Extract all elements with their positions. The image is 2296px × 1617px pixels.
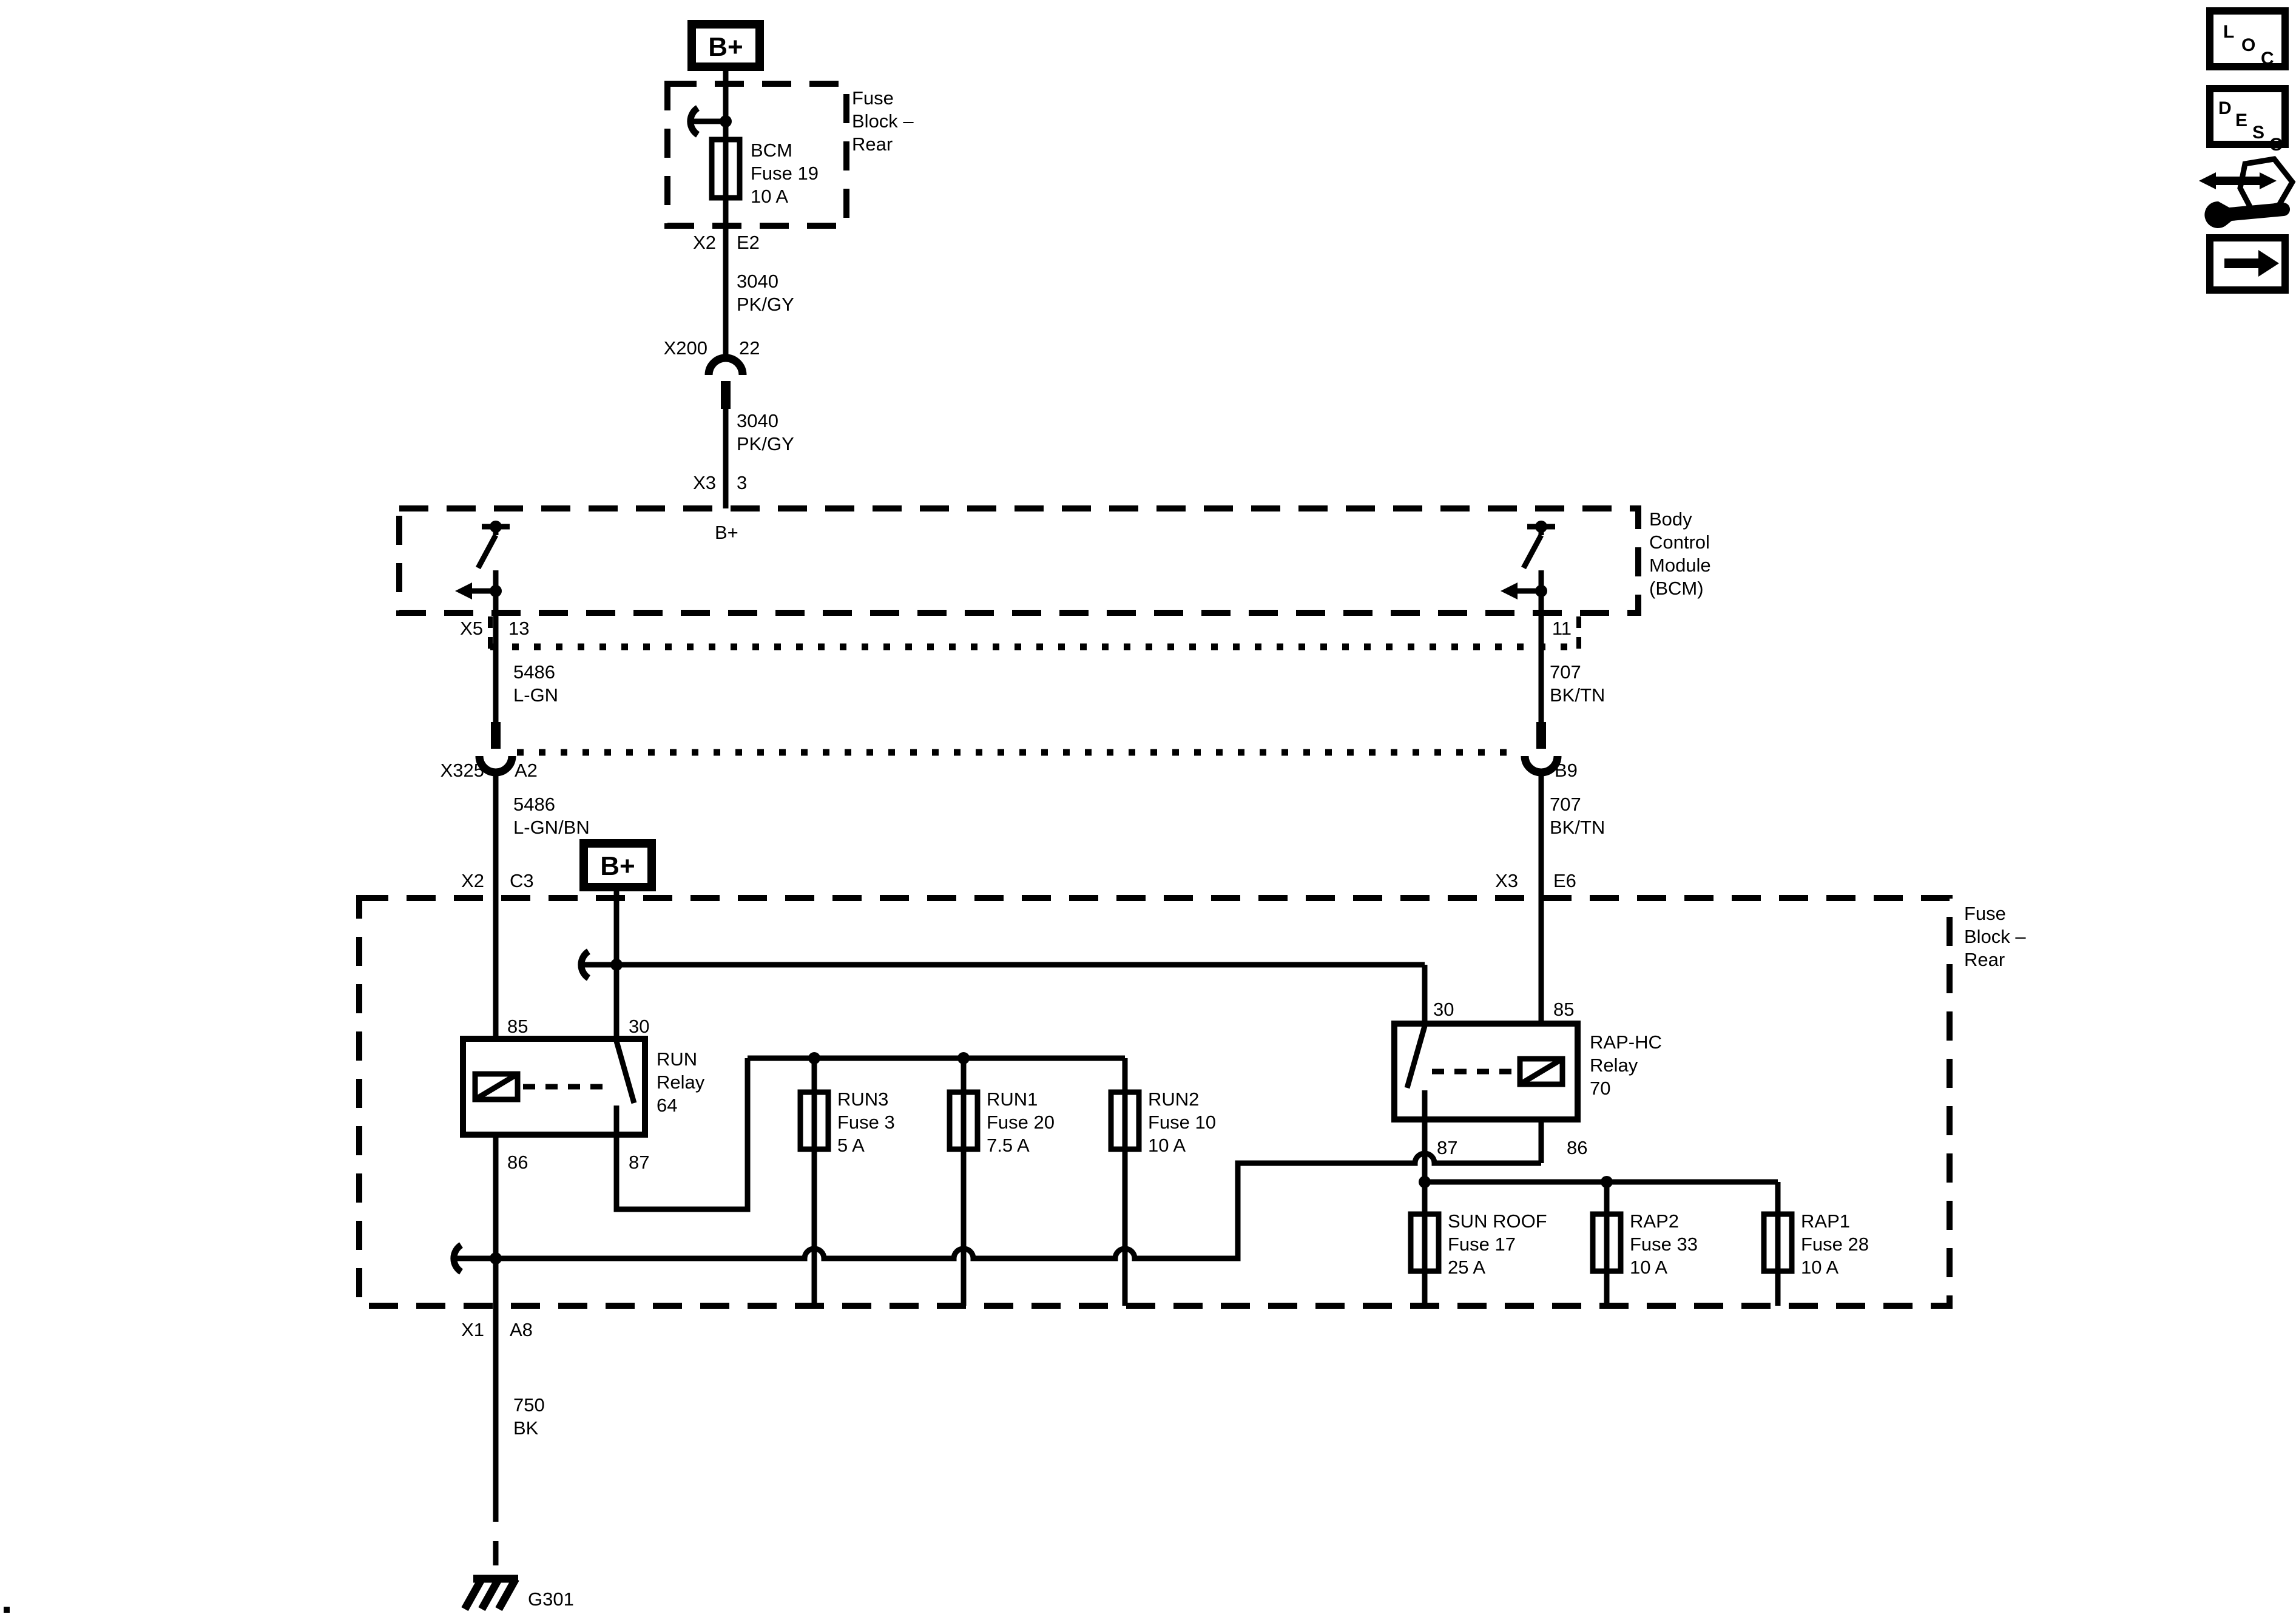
right-arrow-icon [2224,258,2258,268]
connector-label: X3 [1495,870,1518,891]
bcm-label-line: Control [1649,532,1710,553]
wire-color-code: PK/GY [737,294,794,315]
battery-positive-label: B+ [708,32,743,62]
top-feed: B+ X2 E2 3040 PK/GY X200 22 3040 PK/GY X… [664,24,794,508]
fuse-id: Fuse 20 [987,1112,1055,1133]
fuse-rating: 5 A [837,1135,865,1156]
ground-label: G301 [528,1588,574,1610]
desc-button[interactable]: D E S C [2210,89,2285,155]
fuse-rating: 7.5 A [987,1135,1030,1156]
rap-hc-relay: 30 85 87 86 RAP-HC Relay 70 [1394,999,1662,1158]
relay-pin-label: 85 [1553,999,1574,1020]
wire-circuit-number: 707 [1550,661,1581,683]
block-label-line: Block – [852,110,914,132]
pin-label: A2 [515,760,538,781]
bplus-distribution-rail [581,951,1425,1039]
fuse-rating: 10 A [1630,1257,1667,1278]
body-control-module: B+ Body Control Module (BCM) [399,508,1711,613]
wiring-diagram-page: B+ X2 E2 3040 PK/GY X200 22 3040 PK/GY X… [0,0,2296,1617]
relay-name-line: Relay [657,1072,705,1093]
forward-arrow-button[interactable] [2210,238,2285,290]
relay-pin-label: 87 [1437,1137,1457,1158]
connector-label: X5 [460,618,483,639]
ground-symbol-icon [465,1579,518,1609]
relay-pin-label: 85 [507,1016,528,1037]
desc-letter: S [2252,123,2264,143]
wire-color-code: L-GN/BN [513,817,590,838]
relay-name-line: RAP-HC [1590,1031,1662,1053]
fuse-id: Fuse 3 [837,1112,895,1133]
connector-label: X1 [461,1319,484,1340]
inline-connector-x325-left-icon [479,722,512,772]
fuse-name: RAP1 [1801,1210,1850,1232]
wire-circuit-number: 750 [513,1394,545,1416]
pin-label: 22 [739,337,760,359]
connector-label: X325 [441,760,484,781]
relay-pin-label: 86 [507,1152,528,1173]
wire-circuit-number: 5486 [513,661,555,683]
desc-letter: E [2235,110,2247,130]
pin-label: 11 [1552,618,1572,639]
fuse-name: SUN ROOF [1448,1210,1547,1232]
bcm-right-driver-switch-icon [1501,521,1555,599]
run-relay: 85 30 86 87 RUN Relay 64 [463,1016,705,1173]
relay-pin-label: 86 [1567,1137,1587,1158]
pin-label: B9 [1555,760,1578,781]
relay-name-line: RUN [657,1048,697,1070]
wiring-diagram-canvas: B+ X2 E2 3040 PK/GY X200 22 3040 PK/GY X… [0,0,2296,1617]
fuse-id: Fuse 28 [1801,1234,1869,1255]
fuse-rating: 10 A [1801,1257,1838,1278]
bus-with-wire-hops [496,1153,1541,1258]
fuse-id: Fuse 33 [1630,1234,1698,1255]
wire-color-code: L-GN [513,684,558,706]
bcm-left-driver-switch-icon [455,521,510,599]
loc-letter: C [2261,49,2274,69]
wire-color-code: BK/TN [1550,684,1605,706]
bcm-label-line: Module [1649,555,1711,576]
loc-letter: O [2241,35,2255,55]
wire-circuit-number: 5486 [513,794,555,815]
fuse-rating: 10 A [751,186,788,207]
relay-switch-blade [1407,1026,1425,1088]
connector-label: X200 [664,337,707,359]
pin-label: 13 [508,618,529,639]
block-label-line: Fuse [852,87,894,109]
pin-label: C3 [510,870,534,891]
left-arrow-icon [1501,582,1518,599]
block-label-line: Rear [1964,949,2005,970]
block-label-line: Block – [1964,926,2026,947]
fuse-id: Fuse 10 [1148,1112,1216,1133]
left-arrow-icon [455,582,472,599]
connector-label: X2 [461,870,484,891]
relay-name-line: Relay [1590,1055,1638,1076]
fuse-name: RUN2 [1148,1089,1199,1110]
desc-letter: C [2269,135,2283,155]
bcm-label-line: Body [1649,508,1692,530]
inline-connector-x325-right-icon [1525,722,1558,772]
fuse-block-rear-top: BCM Fuse 19 10 A Fuse Block – Rear [667,84,914,226]
bcm-label-line: (BCM) [1649,578,1704,599]
loc-button[interactable]: L O C [2210,11,2285,69]
nav-icon-column: L O C D E S C [2199,11,2292,290]
relay-pin-label: 87 [629,1152,649,1173]
page-artifact-dot [4,1607,10,1613]
fuse-name: BCM [751,140,792,161]
relay-pin-label: 30 [1433,999,1454,1020]
wire-color-code: BK/TN [1550,817,1605,838]
relay-name-line: 64 [657,1095,677,1116]
connector-label: X2 [693,232,716,253]
bcm-outline [399,508,1638,613]
wire-circuit-number: 3040 [737,271,778,292]
fuse-name: RUN1 [987,1089,1038,1110]
pin-label: E2 [737,232,760,253]
rap-fuse-branch: SUN ROOF Fuse 17 25 A RAP2 Fuse 33 10 A … [1411,1119,1869,1306]
wire-circuit-number: 3040 [737,410,778,431]
relay-pin-label: 30 [629,1016,649,1037]
wire-color-code: PK/GY [737,433,794,454]
relay-name-line: 70 [1590,1078,1610,1099]
fuse-block-rear-lower: Fuse Block – Rear 85 30 86 87 RUN Relay [359,898,2026,1306]
battery-positive-label: B+ [600,851,635,881]
wire-circuit-number: 707 [1550,794,1581,815]
ground-path: X1 A8 750 BK G301 [461,1306,574,1610]
pin-label: A8 [510,1319,533,1340]
pin-label: E6 [1553,870,1576,891]
fuse-id: Fuse 19 [751,163,819,184]
pin-label: 3 [737,472,747,493]
connector-label: X3 [693,472,716,493]
loc-letter: L [2223,22,2234,42]
fuse-rating: 25 A [1448,1257,1485,1278]
fuse-name: RUN3 [837,1089,888,1110]
inline-connector-x200-icon [709,358,743,409]
fuse-name: RAP2 [1630,1210,1679,1232]
bcm-bplus-label: B+ [715,522,738,543]
wire-color-code: BK [513,1417,539,1439]
block-label-line: Rear [852,133,893,155]
fuse-id: Fuse 17 [1448,1234,1516,1255]
fuse-rating: 10 A [1148,1135,1186,1156]
desc-letter: D [2218,98,2232,118]
schematic-tools-button[interactable] [2199,159,2292,228]
block-label-line: Fuse [1964,903,2006,924]
relay-switch-blade [616,1041,634,1103]
run-fuse-branch: RUN3 Fuse 3 5 A RUN1 Fuse 20 7.5 A RUN2 … [616,1052,1216,1306]
